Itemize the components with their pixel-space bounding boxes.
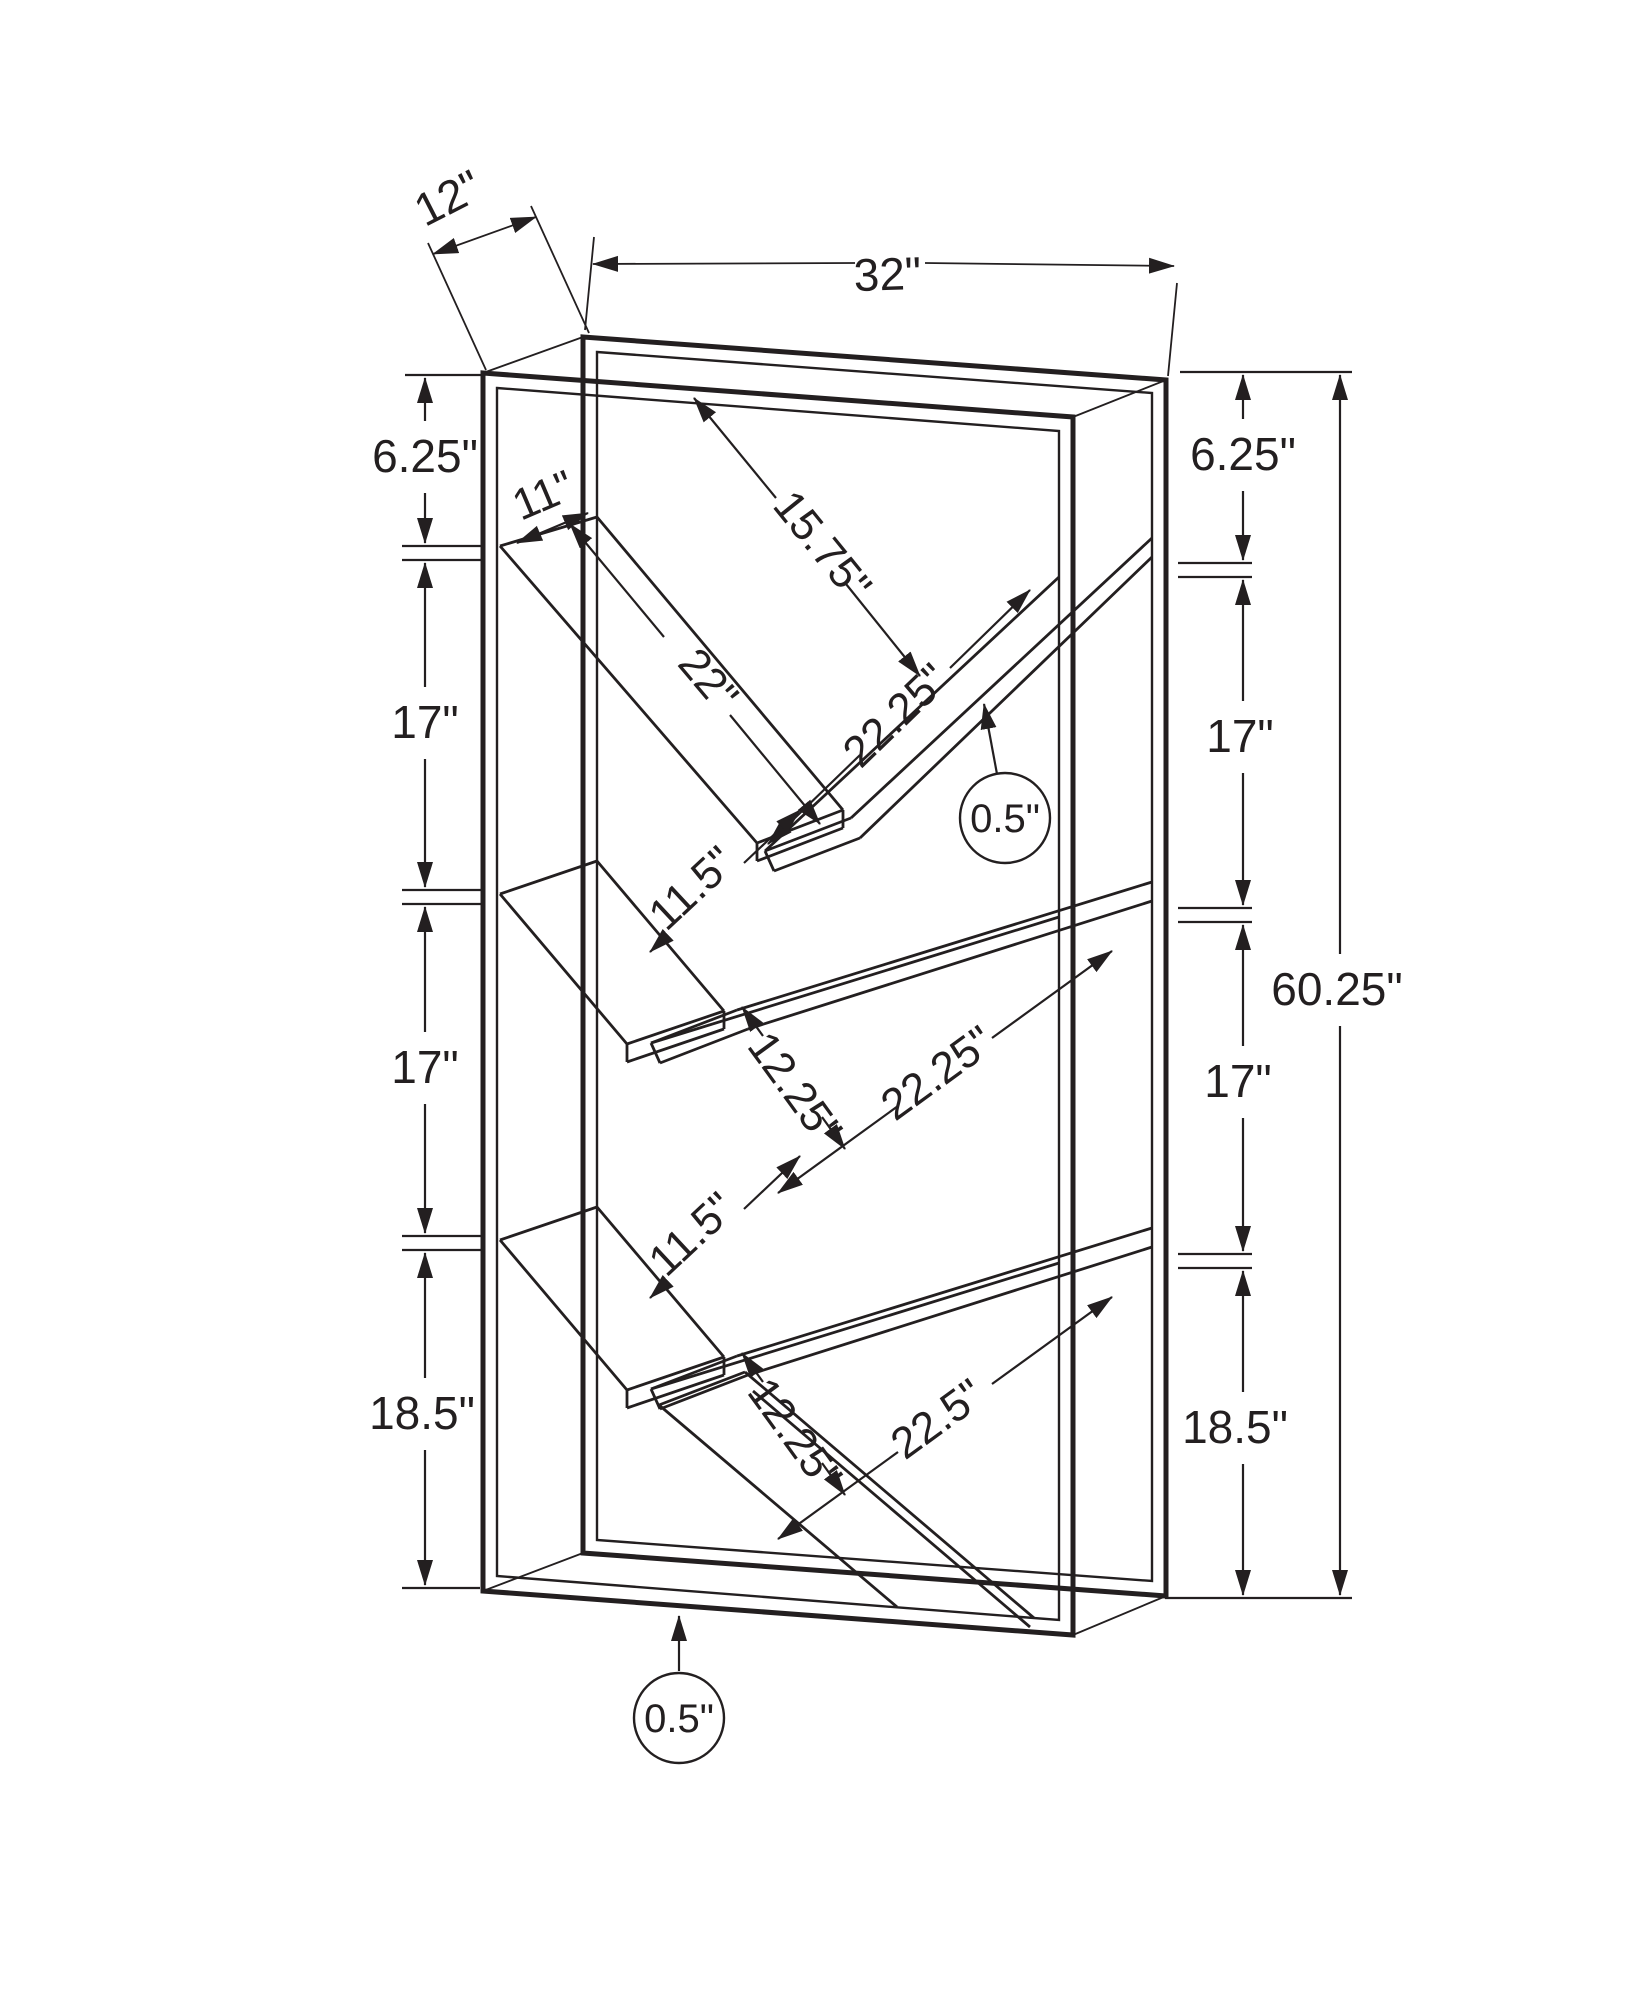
dim-label-diag-11-5-low: 11.5" bbox=[640, 1183, 745, 1286]
dim-label-right-18-5: 18.5" bbox=[1182, 1401, 1288, 1453]
shelf-2-right bbox=[651, 882, 1152, 1063]
dim-label-depth-12: 12" bbox=[406, 159, 490, 236]
dim-label-callout-0-5-bottom: 0.5" bbox=[644, 1697, 714, 1741]
dim-label-diag-11-5-mid: 11.5" bbox=[640, 837, 745, 940]
dim-label-right-6-25: 6.25" bbox=[1190, 428, 1296, 480]
dim-label-diag-22-5: 22.5" bbox=[882, 1370, 993, 1469]
dim-label-diag-12-25-low: 12.25" bbox=[738, 1369, 852, 1500]
dim-label-width-32: 32" bbox=[853, 247, 922, 301]
dim-label-callout-0-5-top: 0.5" bbox=[970, 797, 1040, 841]
dim-label-right-17-b: 17" bbox=[1204, 1055, 1272, 1107]
shelf-3-right bbox=[651, 1228, 1152, 1409]
dim-label-diag-22-25-top: 22.25" bbox=[834, 654, 958, 777]
dim-label-diag-22-25-mid: 22.25" bbox=[872, 1016, 1003, 1130]
bookcase-dimension-drawing: 12"32"6.25"17"17"18.5"6.25"17"17"18.5"60… bbox=[0, 0, 1648, 2000]
dim-label-left-6-25: 6.25" bbox=[372, 430, 478, 482]
dim-label-diag-12-25-mid: 12.25" bbox=[738, 1023, 852, 1154]
dim-label-left-18-5: 18.5" bbox=[369, 1387, 475, 1439]
drawing-page: 12"32"6.25"17"17"18.5"6.25"17"17"18.5"60… bbox=[0, 0, 1648, 2000]
dim-label-left-17-a: 17" bbox=[391, 696, 459, 748]
depth-dimension bbox=[428, 206, 589, 370]
dim-label-height-60-25: 60.25" bbox=[1271, 963, 1402, 1015]
dim-label-left-17-b: 17" bbox=[391, 1041, 459, 1093]
shelf-1-right bbox=[765, 538, 1152, 871]
dim-label-diag-22: 22" bbox=[669, 639, 748, 720]
dim-label-right-17-a: 17" bbox=[1206, 710, 1274, 762]
shelf-1-left bbox=[500, 517, 843, 861]
dim-label-diag-15-75: 15.75" bbox=[764, 482, 881, 611]
